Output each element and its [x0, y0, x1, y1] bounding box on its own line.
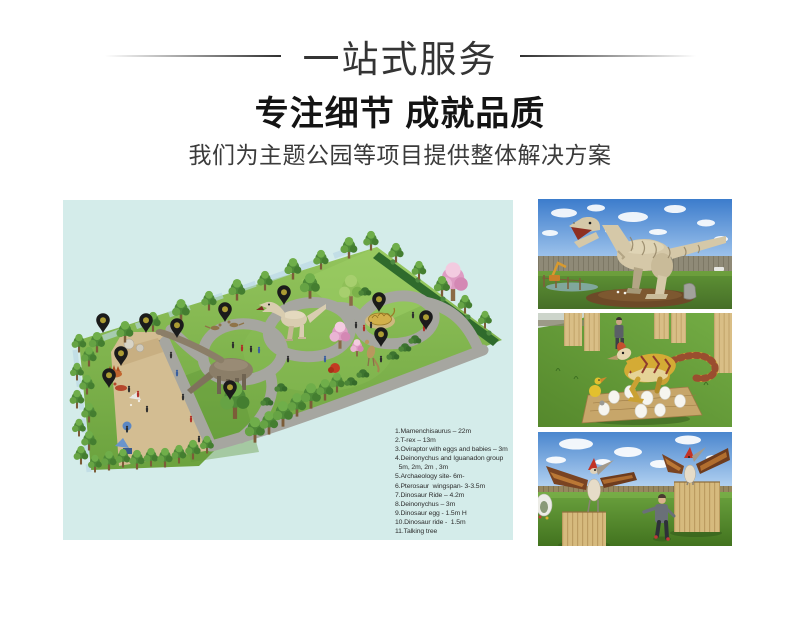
legend-item: 6.Pterosaur wingspan- 3-3.5m [395, 482, 513, 491]
headline: 专注细节 成就品质 [0, 86, 800, 135]
legend-item: 9.Dinosaur egg - 1.5m H [395, 509, 513, 518]
oviraptor-photo-illustration [538, 313, 732, 427]
banner-title: 一站式服务 [303, 29, 498, 83]
legend-item: 8.Deinonychus – 3m [395, 500, 513, 509]
legend-item: 10.Dinosaur ride - 1.5m [395, 518, 513, 527]
banner-rule-left [105, 55, 281, 57]
legend-item: 5m, 2m, 2m , 3m [395, 463, 513, 472]
legend-item: 2.T-rex – 13m [395, 436, 513, 445]
trex-photo-illustration [538, 199, 732, 309]
subheadline: 我们为主题公园等项目提供整体解决方案 [0, 136, 800, 170]
photo-trex [538, 199, 732, 309]
park-map: 1.Mamenchisaurus – 22m 2.T-rex – 13m 3.O… [63, 200, 513, 540]
banner-rule-right [520, 55, 696, 57]
legend-item: 7.Dinosaur Ride – 4.2m [395, 491, 513, 500]
photo-oviraptor-eggs [538, 313, 732, 427]
legend-item: 3.Oviraptor with eggs and babies – 3m [395, 445, 513, 454]
legend-item: 1.Mamenchisaurus – 22m [395, 427, 513, 436]
pterosaur-photo-illustration [538, 432, 732, 546]
legend-item: 5.Archaeology site- 6m- [395, 472, 513, 481]
legend-item: 4.Deinonychus and Iguanadon group [395, 454, 513, 463]
map-legend: 1.Mamenchisaurus – 22m 2.T-rex – 13m 3.O… [395, 427, 513, 536]
banner: 一站式服务 [0, 34, 800, 78]
legend-item: 11.Talking tree [395, 527, 513, 536]
photo-pterosaurs [538, 432, 732, 546]
